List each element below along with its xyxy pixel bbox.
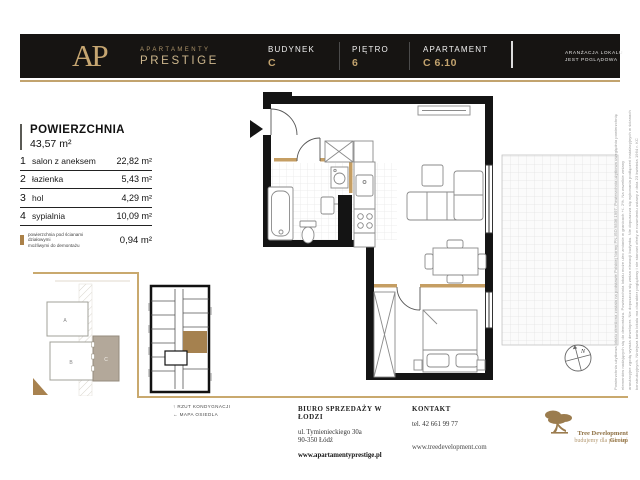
highlighted-unit xyxy=(183,331,207,353)
footer-divider xyxy=(137,396,628,398)
radiator-shelf xyxy=(418,106,470,115)
stove-burner xyxy=(358,223,364,229)
table-row: 4 sypialnia 10,09 m² xyxy=(20,208,152,227)
bathtub xyxy=(268,187,293,240)
building-c-label: C xyxy=(104,357,108,363)
brand-slogan: budujemy dla pokoleń xyxy=(558,438,628,444)
chair xyxy=(478,254,486,269)
room-name: sypialnia xyxy=(32,211,116,221)
room-number: 4 xyxy=(20,210,32,222)
apartment-label: APARTAMENT xyxy=(423,45,488,54)
mini-floor-plan xyxy=(148,283,212,395)
room-name: salon z aneksem xyxy=(32,156,116,166)
office-address1: ul. Tymienieckiego 30a xyxy=(298,429,408,437)
partition-note-row: powierzchnia pod ścianami działowymi moż… xyxy=(20,232,152,248)
room-number: 1 xyxy=(20,155,32,167)
room-area: 10,09 m² xyxy=(116,211,152,221)
footer-office: BIURO SPRZEDAŻY W ŁODZI ul. Tymienieckie… xyxy=(298,405,408,459)
header-divider-2 xyxy=(409,42,410,70)
header-gold-rule xyxy=(20,80,620,82)
table-row: 1 salon z aneksem 22,82 m² xyxy=(20,152,152,171)
area-panel-title: POWIERZCHNIA xyxy=(30,124,125,136)
building-label: BUDYNEK xyxy=(268,45,315,54)
nightstand xyxy=(414,360,422,370)
dining-table xyxy=(425,240,486,283)
compass-icon: N xyxy=(560,336,600,380)
table-row: 2 łazienka 5,43 m² xyxy=(20,171,152,190)
room-table: 1 salon z aneksem 22,82 m² 2 łazienka 5,… xyxy=(20,152,152,248)
brand-line1: APARTAMENTY xyxy=(140,47,210,53)
armchair xyxy=(422,165,443,186)
brand-line2: PRESTIGE xyxy=(140,55,219,67)
pillow xyxy=(427,354,449,367)
nightstand xyxy=(477,360,485,370)
entrance-door-arc xyxy=(271,109,297,135)
stove-burner xyxy=(358,214,364,220)
bed xyxy=(414,310,485,372)
chair xyxy=(447,240,463,248)
contact-website-link[interactable]: www.treedevelopment.com xyxy=(412,444,522,451)
brand-monogram: AP xyxy=(72,38,106,74)
header-note: ARANŻACJA LOKALU JEST POGLĄDOWA xyxy=(565,51,635,64)
partition-note-value: 0,94 m² xyxy=(120,235,152,246)
chair xyxy=(425,254,433,269)
header-note-line2: JEST POGLĄDOWA xyxy=(565,58,635,65)
building-a xyxy=(47,302,88,336)
pillow xyxy=(456,354,478,367)
kitchen-counter xyxy=(354,162,375,247)
room-area: 22,82 m² xyxy=(116,156,152,166)
apartment-value: C 6.10 xyxy=(423,57,457,69)
hall-wardrobe xyxy=(325,141,373,162)
room-number: 2 xyxy=(20,173,32,185)
legal-disclaimer: Powierzchnia użytkowa lokalu określona z… xyxy=(612,94,640,390)
area-panel-total: 43,57 m² xyxy=(30,138,71,150)
stove-burner xyxy=(367,214,373,220)
partition-note-line1: powierzchnia pod ścianami działowymi xyxy=(28,232,106,243)
floor-label: PIĘTRO xyxy=(352,45,389,54)
area-panel-bar xyxy=(20,124,22,150)
mini-label-site-map: ← MAPA OSIEDLA xyxy=(173,412,218,417)
disclaimer-line1: Powierzchnia użytkowa lokalu określona z… xyxy=(612,94,626,390)
site-map: A B C xyxy=(30,276,140,396)
header-divider-1 xyxy=(339,42,340,70)
header-divider-3 xyxy=(511,41,513,68)
bedroom-wardrobe xyxy=(374,292,395,377)
balcony xyxy=(502,155,618,345)
office-title: BIURO SPRZEDAŻY W ŁODZI xyxy=(298,405,408,421)
map-corner-accent xyxy=(33,378,48,395)
stove-burner xyxy=(367,223,373,229)
washing-machine xyxy=(331,167,348,188)
room-number: 3 xyxy=(20,192,32,204)
office-address2: 90-350 Łódź xyxy=(298,437,408,445)
chair xyxy=(447,275,463,283)
sofa xyxy=(407,171,483,220)
room-name: łazienka xyxy=(32,174,121,184)
room-name: hol xyxy=(32,193,121,203)
mini-label-floor-plan: ↑ RZUT KONDYGNACJI xyxy=(173,404,230,409)
partition-note-text: powierzchnia pod ścianami działowymi moż… xyxy=(28,232,106,248)
apartment-card-page: AP APARTAMENTY PRESTIGE BUDYNEK C PIĘTRO… xyxy=(0,0,640,480)
disclaimer-line2: aranżacyjne zgodę wyraża deweloper. Nie … xyxy=(626,94,640,390)
partition-note-line2: możliwymi do demontażu xyxy=(28,243,106,248)
floor-value: 6 xyxy=(352,57,358,69)
contact-title: KONTAKT xyxy=(412,405,522,413)
site-map-frame-top xyxy=(33,272,138,274)
partition-wall-icon xyxy=(20,235,24,245)
office-website-link[interactable]: www.apartamentyprestige.pl xyxy=(298,452,408,459)
footer-contact: KONTAKT tel. 42 661 99 77 www.treedevelo… xyxy=(412,405,522,451)
table-row: 3 hol 4,29 m² xyxy=(20,189,152,208)
contact-phone: tel. 42 661 99 77 xyxy=(412,421,522,429)
room-area: 5,43 m² xyxy=(121,174,152,184)
entrance-arrow-icon xyxy=(250,120,263,138)
bedroom-door-arc xyxy=(397,287,420,310)
building-value: C xyxy=(268,57,276,69)
bathroom-door-arc xyxy=(297,138,320,161)
room-area: 4,29 m² xyxy=(121,193,152,203)
header-bar: AP APARTAMENTY PRESTIGE BUDYNEK C PIĘTRO… xyxy=(20,34,620,78)
